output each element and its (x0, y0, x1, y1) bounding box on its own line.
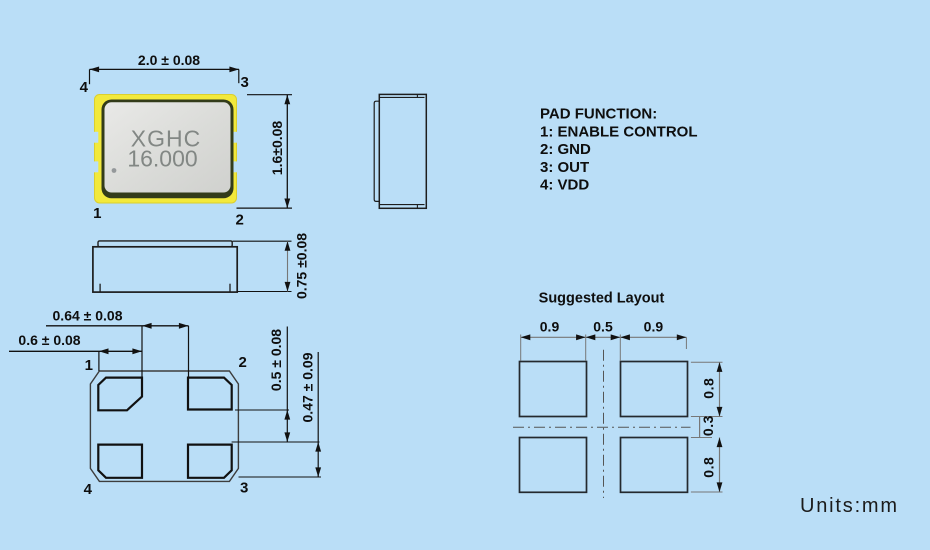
svg-text:0.9: 0.9 (540, 319, 560, 335)
svg-text:3: 3 (241, 74, 249, 91)
svg-text:0.6 ± 0.08: 0.6 ± 0.08 (18, 332, 80, 348)
svg-text:2: 2 (239, 354, 247, 371)
svg-text:1.6±0.08: 1.6±0.08 (269, 121, 285, 176)
svg-text:1: 1 (93, 205, 101, 222)
svg-text:0.9: 0.9 (644, 319, 664, 335)
svg-text:PAD FUNCTION:: PAD FUNCTION: (540, 106, 657, 123)
svg-text:0.8: 0.8 (701, 457, 717, 478)
svg-text:1: ENABLE CONTROL: 1: ENABLE CONTROL (540, 123, 698, 140)
svg-text:0.75 ±0.08: 0.75 ±0.08 (294, 233, 310, 299)
svg-text:0.3: 0.3 (700, 415, 716, 436)
svg-text:0.64 ± 0.08: 0.64 ± 0.08 (53, 308, 123, 324)
svg-text:4: 4 (80, 79, 89, 96)
svg-text:3: 3 (240, 480, 248, 497)
svg-text:0.5: 0.5 (593, 319, 613, 335)
svg-text:2: 2 (236, 211, 244, 228)
svg-text:2: GND: 2: GND (540, 141, 591, 158)
svg-text:2.0 ± 0.08: 2.0 ± 0.08 (138, 52, 200, 68)
svg-text:Units:mm: Units:mm (800, 495, 899, 517)
svg-text:0.47 ± 0.09: 0.47 ± 0.09 (300, 352, 316, 422)
svg-text:0.8: 0.8 (701, 378, 717, 399)
svg-text:16.000: 16.000 (127, 146, 197, 172)
svg-text:4: VDD: 4: VDD (540, 177, 589, 194)
svg-text:3: OUT: 3: OUT (540, 159, 589, 176)
svg-text:4: 4 (84, 481, 93, 498)
svg-text:1: 1 (85, 357, 93, 374)
svg-text:Suggested Layout: Suggested Layout (539, 290, 665, 306)
svg-text:0.5 ± 0.08: 0.5 ± 0.08 (268, 329, 284, 391)
